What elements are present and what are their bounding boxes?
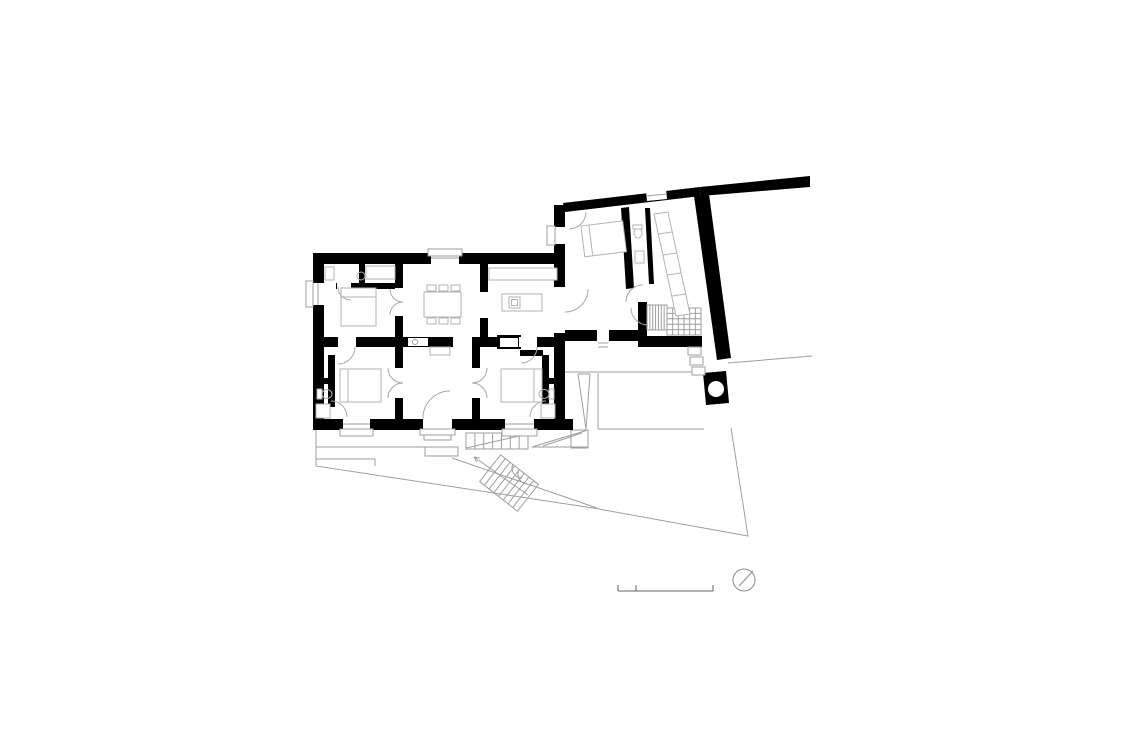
- chair-2: [439, 285, 448, 291]
- shower-2: [316, 404, 330, 418]
- kitchen-island: [502, 294, 542, 311]
- sill-annexwall: [547, 226, 555, 245]
- win-annexwall-gap: [554, 227, 565, 244]
- dining-table: [424, 292, 461, 317]
- chair-6: [451, 318, 460, 324]
- stair-wall-bottom: [638, 336, 702, 347]
- fireplace-inner: [500, 338, 518, 347]
- open-dining-kitchen: [480, 292, 488, 318]
- bed-1: [341, 288, 376, 326]
- sill-bed2: [340, 429, 373, 436]
- kitchen-counter: [489, 268, 557, 280]
- wall-ensuite3-h: [547, 378, 559, 384]
- bed-annex: [581, 221, 626, 257]
- court-column: [708, 381, 724, 397]
- sill-left: [306, 281, 313, 307]
- chair-3: [451, 285, 460, 291]
- closet-sink: [325, 267, 334, 280]
- toilet-3-tank: [549, 389, 554, 399]
- corridor-wall-a: [565, 330, 597, 341]
- open-dining-hall: [453, 337, 472, 347]
- annex-step-2: [690, 357, 703, 365]
- open-kitchen-door: [519, 337, 537, 347]
- toilet-2-tank: [317, 389, 322, 399]
- sill-bed3: [502, 429, 537, 436]
- open-house-annex: [554, 287, 565, 333]
- entry-step-1: [420, 429, 455, 435]
- entry-step-2: [424, 435, 451, 440]
- cabinet-hall: [430, 347, 450, 355]
- annex-step-1: [688, 347, 701, 355]
- bed-2: [340, 369, 381, 402]
- wall-ensuite2-h: [316, 378, 335, 384]
- entry-gap: [423, 418, 452, 430]
- bed-3: [501, 369, 542, 402]
- sink-annex: [635, 251, 644, 263]
- corridor-wall-b: [609, 330, 638, 341]
- floor-plan-drawing: [0, 0, 1125, 750]
- wardrobe-1: [366, 266, 395, 279]
- sill-top: [428, 249, 462, 256]
- island-sink-inner: [512, 300, 518, 306]
- toilet-annex-tank: [633, 225, 642, 229]
- annex-stair-flight: [647, 305, 667, 330]
- open-mid-bed2: [338, 337, 356, 347]
- chair-1: [427, 285, 436, 291]
- terrace-notch: [425, 447, 458, 456]
- annex-step-3: [692, 367, 705, 375]
- shower-3: [541, 404, 555, 418]
- chair-5: [439, 318, 448, 324]
- open-corridor-terrace: [597, 330, 609, 341]
- floor-plan-page: [0, 0, 1125, 750]
- wall-closet3-stub: [520, 350, 543, 356]
- chair-4: [427, 318, 436, 324]
